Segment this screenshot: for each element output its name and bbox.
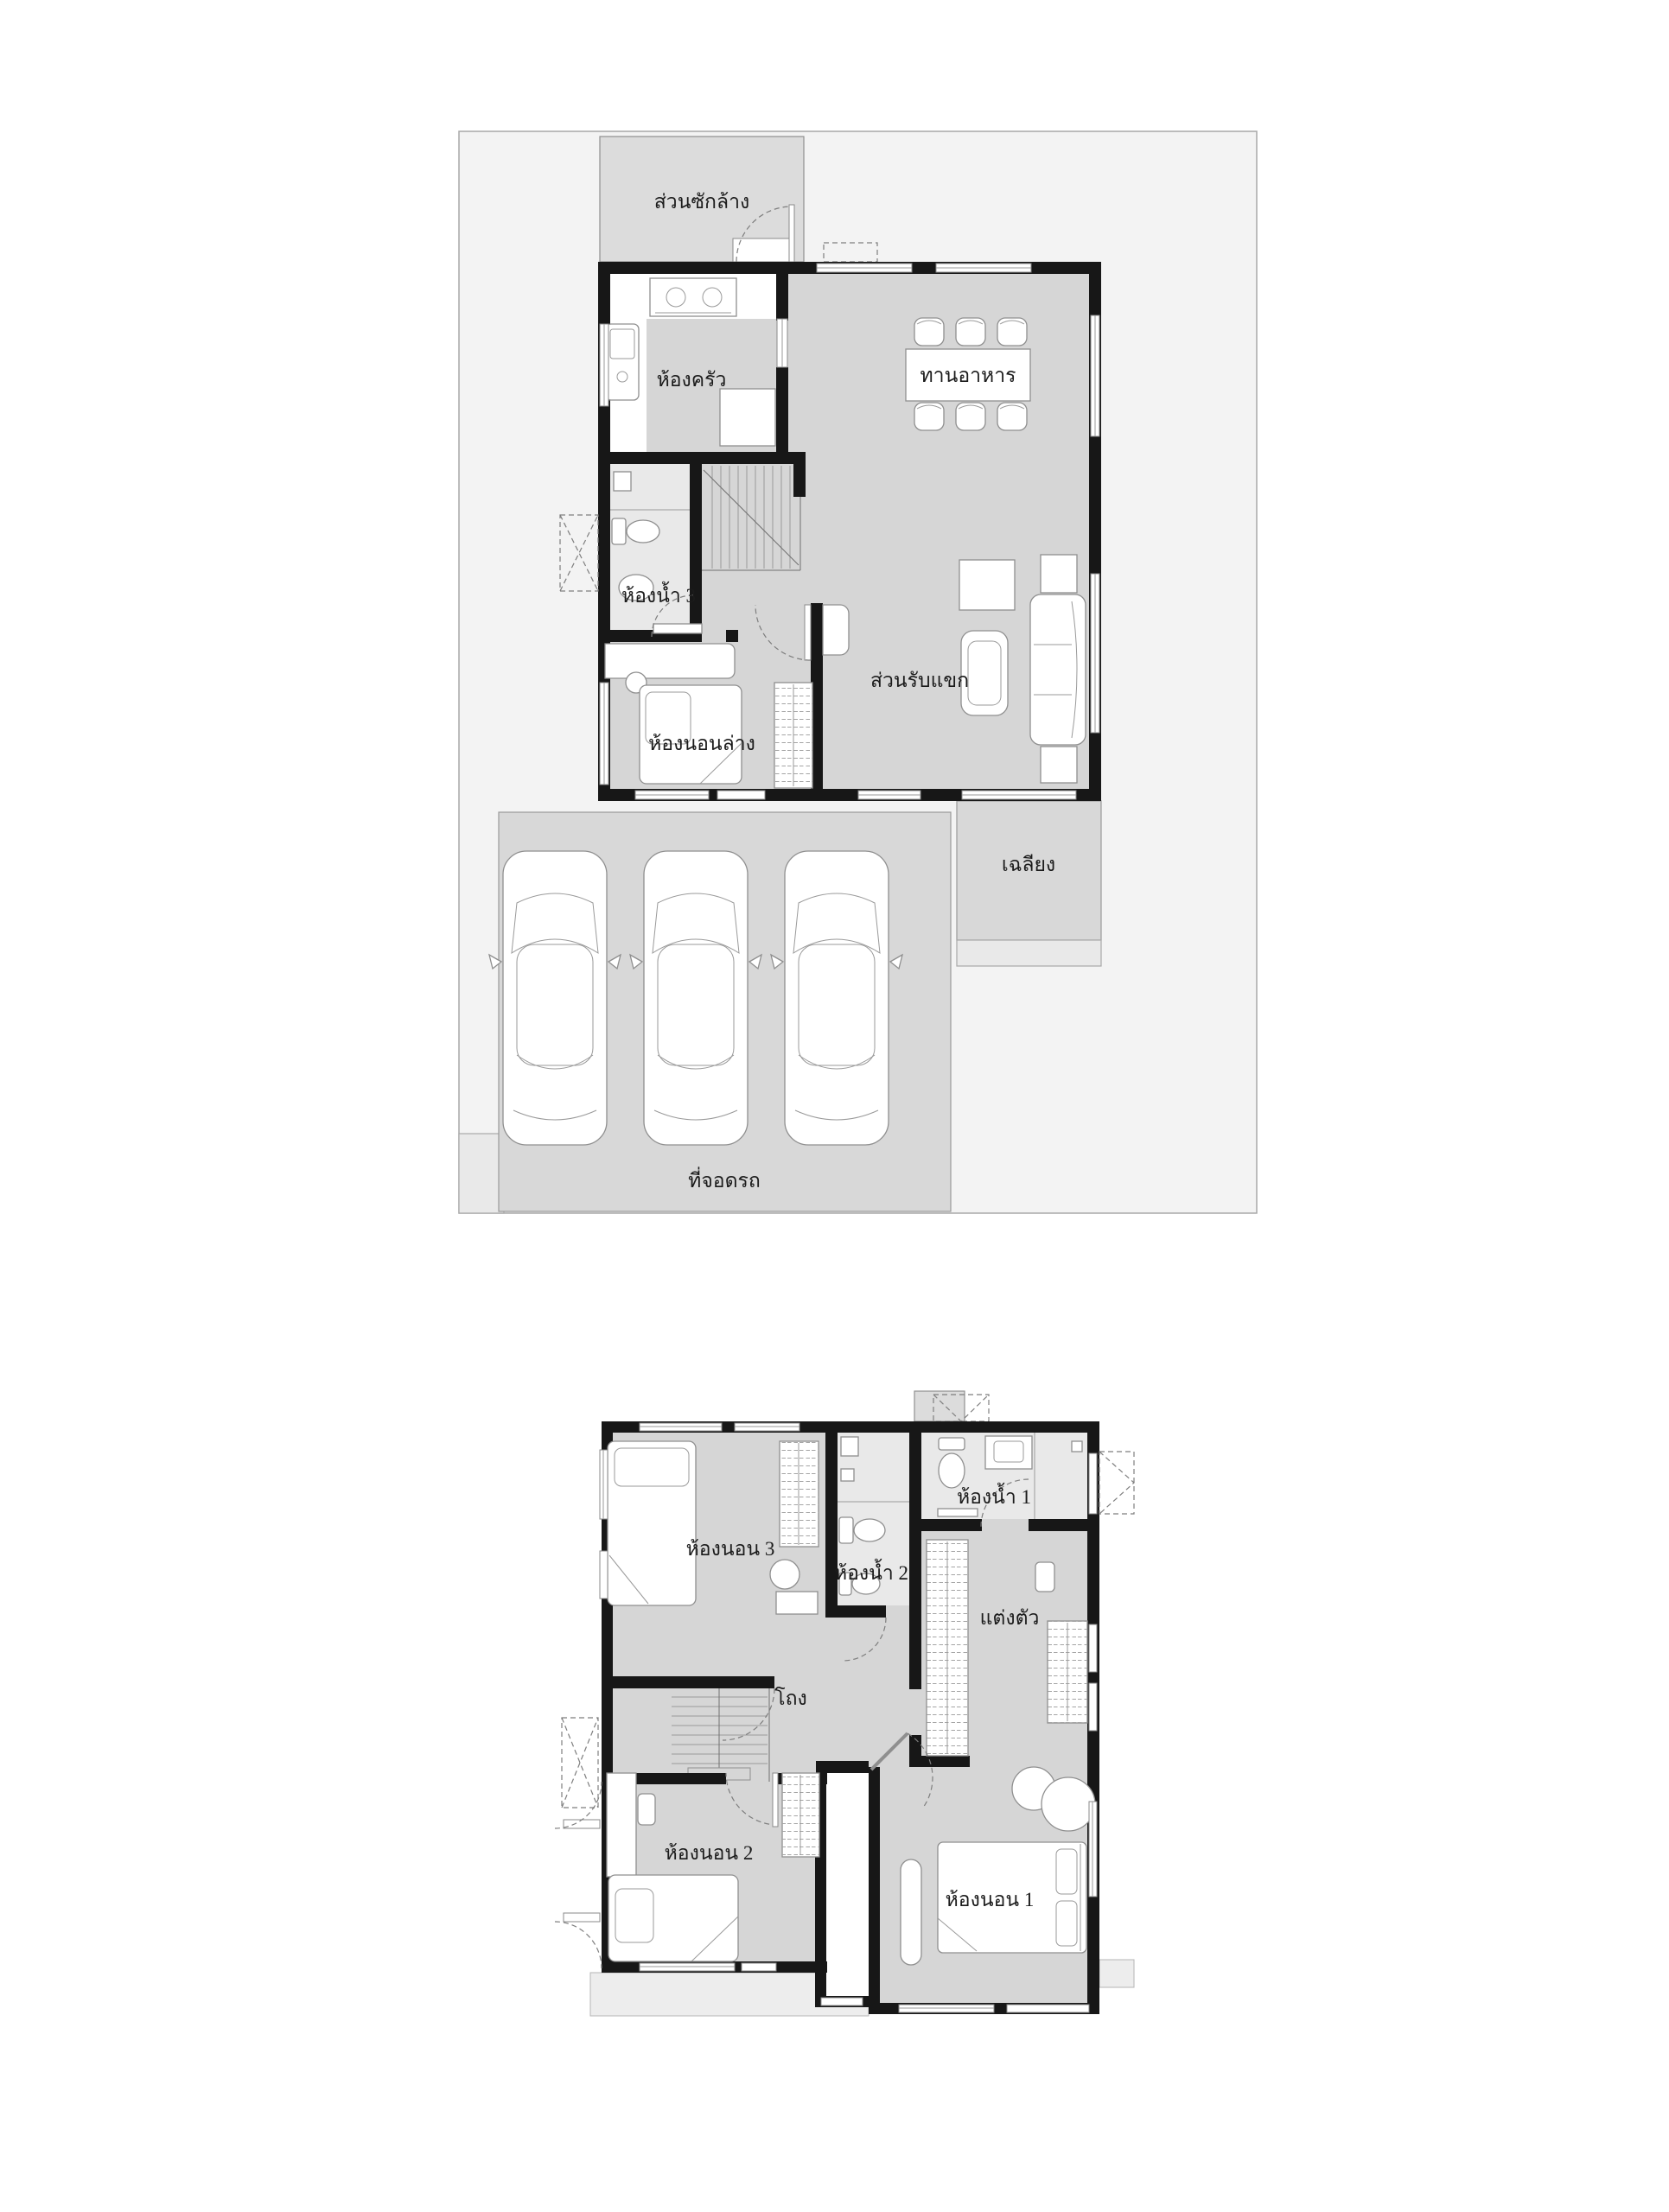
stove-icon (650, 278, 736, 316)
chair-icon (956, 318, 985, 346)
bath3-label: ห้องน้ำ 3 (621, 582, 696, 607)
desk-icon (607, 1773, 636, 1877)
chair-icon (1035, 1562, 1054, 1592)
entry-cabinet-icon (823, 605, 849, 655)
desk-icon (776, 1592, 818, 1614)
room-parking: ที่จอดรถ (489, 812, 951, 1211)
laundry-door-leaf (789, 205, 794, 262)
toilet-tank-icon (612, 518, 626, 544)
chair-icon (956, 403, 985, 430)
car-icon (630, 851, 761, 1145)
sink-icon (606, 324, 639, 400)
bedroom-lower-label: ห้องนอนล่าง (648, 733, 755, 754)
dressing-label: แต่งตัว (980, 1607, 1040, 1629)
stool-icon (770, 1560, 799, 1589)
bedroom-door-leaf (805, 605, 811, 660)
toilet-icon (854, 1519, 885, 1541)
shower-drain-icon (1072, 1441, 1082, 1452)
floor2-top-stub (914, 1391, 965, 1421)
chair-icon (997, 318, 1027, 346)
chair-icon (914, 318, 944, 346)
desk-icon (605, 644, 735, 678)
floor1-plan: ส่วนซักล้าง ที่จอดรถ เฉลียง (459, 131, 1257, 1213)
casement-window-box (1099, 1452, 1134, 1514)
dining-label: ทานอาหาร (920, 365, 1016, 386)
kitchen-label: ห้องครัว (657, 369, 727, 391)
corridor-floor (826, 1773, 869, 1996)
bench-icon (901, 1859, 921, 1965)
bed-icon (608, 1875, 738, 1961)
chair-icon (914, 403, 944, 430)
bedroom2-door-leaf (773, 1773, 778, 1827)
car-icon (489, 851, 621, 1145)
bath2-label: ห้องน้ำ 2 (834, 1559, 908, 1584)
parking-label: ที่จอดรถ (688, 1166, 761, 1192)
bed-icon (608, 1441, 696, 1605)
bedroom2-label: ห้องนอน 2 (665, 1842, 754, 1864)
basin-icon (841, 1469, 854, 1481)
laundry-step (733, 238, 793, 262)
toilet-icon (627, 520, 659, 543)
bedroom1-label: ห้องนอน 1 (946, 1889, 1035, 1910)
floor2-plan: ห้องนอน 3 ห้องน้ำ 2 ห้องน้ำ 1 (555, 1391, 1134, 2016)
bath-mat-icon (653, 624, 702, 633)
floor-plan-page: ส่วนซักล้าง ที่จอดรถ เฉลียง (0, 0, 1669, 2212)
side-table-icon (1041, 747, 1077, 783)
fridge-icon (720, 389, 775, 446)
towel-rail-icon (938, 1509, 978, 1516)
room-porch: เฉลียง (957, 801, 1101, 966)
bedroom3-label: ห้องนอน 3 (686, 1538, 775, 1560)
toilet-icon (939, 1453, 965, 1488)
side-table-icon (1041, 555, 1077, 593)
toilet-tank-icon (939, 1438, 965, 1450)
toilet-tank-icon (839, 1517, 853, 1543)
casement-window-swing (555, 1782, 602, 1968)
bath1-label: ห้องน้ำ 1 (957, 1483, 1031, 1508)
floor-plan-canvas: ส่วนซักล้าง ที่จอดรถ เฉลียง (0, 0, 1669, 2212)
water-heater-icon (614, 472, 631, 491)
laundry-label: ส่วนซักล้าง (654, 191, 749, 213)
living-label: ส่วนรับแขก (870, 670, 969, 691)
chair-icon (638, 1794, 655, 1825)
floor1-site-step (459, 1134, 504, 1213)
bedroom1-extension (869, 1961, 1087, 2003)
porch-label: เฉลียง (1002, 854, 1055, 875)
round-chair-icon (1042, 1777, 1095, 1831)
casement-window-box (562, 1718, 598, 1808)
water-heater-icon (841, 1437, 858, 1456)
hall-label: โถง (774, 1687, 807, 1709)
chair-icon (997, 403, 1027, 430)
dining-set: ทานอาหาร (906, 318, 1030, 430)
car-icon (771, 851, 902, 1145)
coffee-table-icon (959, 560, 1015, 610)
room-laundry: ส่วนซักล้าง (600, 137, 804, 262)
floor2-right-stub (1099, 1960, 1134, 1987)
